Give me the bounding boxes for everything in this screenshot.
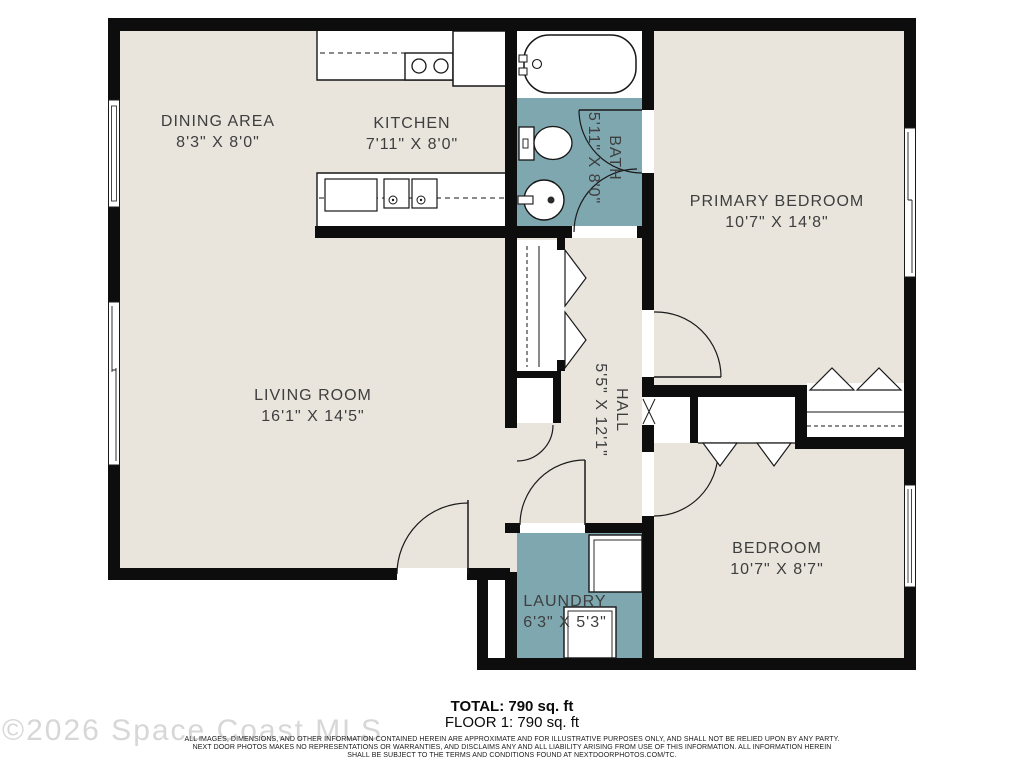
- opening-bedroom-door: [642, 452, 654, 516]
- room-label-living-room: LIVING ROOM 16'1" X 14'5": [254, 385, 372, 427]
- area-summary: TOTAL: 790 sq. ft FLOOR 1: 790 sq. ft: [0, 699, 1024, 731]
- wall-hall-closet-stub: [557, 360, 565, 371]
- room-name: BEDROOM: [730, 538, 824, 559]
- bath-sink-tap-icon: [518, 196, 533, 204]
- wall-right: [904, 277, 916, 437]
- wall-bath-right: [642, 31, 654, 110]
- room-name: PRIMARY BEDROOM: [690, 191, 864, 212]
- room-dims: 5'5" X 12'1": [590, 363, 611, 457]
- wall-kitchen-bath-divider: [505, 31, 517, 226]
- wall-kitchen-bottom: [315, 226, 572, 238]
- wall-right: [904, 587, 916, 670]
- opening-laundry-door: [520, 523, 585, 533]
- window-primary: [905, 128, 916, 277]
- wall-primary-closet-bottom: [795, 437, 916, 449]
- room-dims: 10'7" X 14'8": [690, 212, 864, 233]
- wall-laundry-left: [505, 572, 517, 670]
- opening-bath-primary: [642, 110, 654, 173]
- bedroom-closet-interior: [698, 397, 795, 443]
- refrigerator: [453, 31, 507, 86]
- hall-closet-interior: [517, 240, 557, 371]
- room-label-dining: DINING AREA 8'3" X 8'0": [161, 111, 275, 153]
- room-name: BATH: [604, 112, 625, 204]
- wall-living-bottom: [467, 568, 510, 580]
- room-name: HALL: [611, 363, 632, 457]
- sink-drain-dot: [392, 199, 394, 201]
- opening-primary-door: [642, 310, 654, 377]
- wall-top: [108, 18, 916, 31]
- sink-basin-left: [384, 179, 409, 208]
- room-label-bedroom: BEDROOM 10'7" X 8'7": [730, 538, 824, 580]
- room-label-laundry: LAUNDRY 6'3" X 5'3": [523, 591, 607, 633]
- tub-faucet-icon: [519, 68, 527, 75]
- opening-bath-hall: [572, 226, 637, 238]
- room-name: DINING AREA: [161, 111, 275, 132]
- tub-faucet-icon: [519, 55, 527, 62]
- disclaimer-line: ALL IMAGES, DIMENSIONS, AND OTHER INFORM…: [152, 736, 872, 744]
- burner-icon: [434, 59, 448, 73]
- wall-bottom: [477, 658, 916, 670]
- room-dims: 6'3" X 5'3": [523, 612, 607, 633]
- room-name: LIVING ROOM: [254, 385, 372, 406]
- total-area-text: TOTAL: 790 sq. ft: [0, 699, 1024, 715]
- wall-laundry-top-stub: [505, 523, 520, 533]
- floor-plan-drawing: [0, 0, 1024, 768]
- room-dims: 10'7" X 8'7": [730, 559, 824, 580]
- room-label-primary-bedroom: PRIMARY BEDROOM 10'7" X 14'8": [690, 191, 864, 233]
- floor-plan-page: DINING AREA 8'3" X 8'0" KITCHEN 7'11" X …: [0, 0, 1024, 768]
- wall-left: [108, 18, 120, 100]
- window-bedroom: [905, 485, 916, 587]
- opening-front-door: [397, 568, 467, 580]
- window-dining: [109, 100, 120, 207]
- wall-living-hall: [505, 238, 517, 428]
- wall-step: [477, 568, 488, 670]
- disclaimer-line: SHALL BE SUBJECT TO THE TERMS AND CONDIT…: [152, 752, 872, 760]
- wall-right: [904, 18, 916, 128]
- disclaimer-line: NEXT DOOR PHOTOS MAKES NO REPRESENTATION…: [152, 744, 872, 752]
- room-label-kitchen: KITCHEN 7'11" X 8'0": [366, 113, 458, 155]
- room-dims: 8'3" X 8'0": [161, 132, 275, 153]
- room-dims: 5'11" X 8'0": [583, 112, 604, 204]
- room-dims: 7'11" X 8'0": [366, 134, 458, 155]
- bath-sink-drain-dot: [548, 197, 555, 204]
- wall-right: [904, 449, 916, 485]
- wall-bath-right: [642, 173, 654, 238]
- washer: [589, 535, 642, 592]
- toilet-tank: [519, 127, 534, 160]
- bathtub: [524, 35, 636, 93]
- wall-hall-right: [642, 238, 654, 310]
- wall-left: [108, 207, 120, 302]
- room-name: LAUNDRY: [523, 591, 607, 612]
- window-living: [109, 302, 120, 465]
- burner-icon: [412, 59, 426, 73]
- floor-area-text: FLOOR 1: 790 sq. ft: [0, 715, 1024, 731]
- room-label-bath: BATH 5'11" X 8'0": [583, 112, 625, 204]
- linen-closet-interior: [654, 397, 690, 443]
- wall-living-bottom: [108, 568, 397, 580]
- wall-utility-right: [553, 371, 561, 423]
- opening-hall-closet: [557, 250, 565, 360]
- room-name: KITCHEN: [366, 113, 458, 134]
- wall-closet-divider: [690, 397, 698, 443]
- sink-drain-dot: [420, 199, 422, 201]
- wall-hall-right: [642, 425, 654, 452]
- wall-left: [108, 465, 120, 580]
- wall-bedroom-left: [642, 516, 654, 658]
- room-dims: 16'1" X 14'5": [254, 406, 372, 427]
- dishwasher: [325, 179, 377, 211]
- wall-laundry-top: [585, 523, 645, 533]
- utility-closet-interior: [517, 378, 553, 423]
- sink-basin-right: [412, 179, 437, 208]
- room-label-hall: HALL 5'5" X 12'1": [590, 363, 632, 457]
- wall-primary-closet: [642, 385, 807, 397]
- wall-hall-closet-stub: [557, 238, 565, 250]
- disclaimer: ALL IMAGES, DIMENSIONS, AND OTHER INFORM…: [152, 736, 872, 760]
- toilet-bowl: [534, 127, 572, 160]
